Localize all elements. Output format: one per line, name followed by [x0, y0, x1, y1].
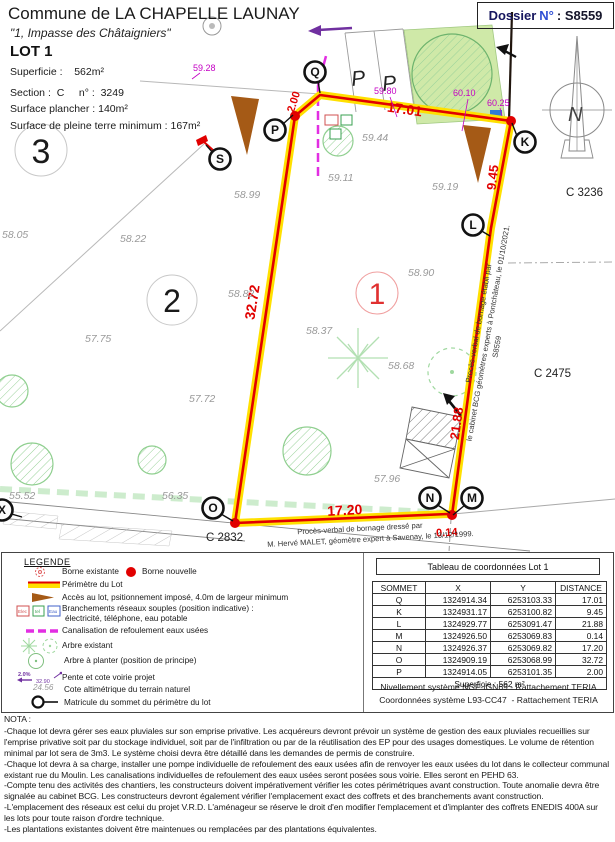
svg-text:2: 2	[163, 283, 181, 319]
table-header-row: SOMMET X Y DISTANCE	[373, 582, 607, 594]
table-row: Q1324914.346253103.3317.01	[373, 594, 607, 606]
snowflake-tree	[328, 328, 388, 388]
pleine-terre-line: Surface de pleine terre minimum : 167m²	[10, 120, 200, 132]
canalisation-icon	[26, 627, 62, 635]
dossier-label: Dossier	[489, 8, 537, 23]
legend-arbre-planter: Arbre à planter (position de principe)	[64, 656, 196, 665]
legend: LEGENDE Borne existante Borne nouvelle P…	[2, 553, 364, 712]
legend-canalisation: Canalisation de refoulement eaux usées	[62, 626, 208, 635]
sommet-o: O	[208, 501, 217, 515]
table-title: Tableau de coordonnées Lot 1	[376, 558, 600, 575]
svg-text:Eau: Eau	[49, 609, 58, 614]
legend-acces: Accès au lot, psitionnement imposé, 4.0m…	[62, 593, 288, 602]
plan-drawing: P P	[0, 0, 615, 552]
lot-title: LOT 1	[10, 43, 53, 60]
branchements-icon: Elec tel Eau	[16, 605, 62, 618]
sommet-p: P	[271, 123, 279, 137]
survey-plan-page: P P	[0, 0, 615, 842]
col-distance: DISTANCE	[556, 582, 607, 594]
dossier-no: N°	[539, 8, 554, 23]
svg-text:17.20: 17.20	[327, 501, 363, 519]
svg-text:3: 3	[32, 133, 51, 171]
nota-section: NOTA : -Chaque lot devra gérer ses eaux …	[4, 712, 610, 835]
nota-item: -Chaque lot devra à sa charge, installer…	[4, 759, 610, 781]
svg-text:59.11: 59.11	[328, 172, 354, 184]
address-subtitle: "1, Impasse des Châtaigniers"	[10, 26, 171, 40]
table-row: N1324926.376253069.8217.20	[373, 642, 607, 654]
svg-text:57.96: 57.96	[374, 473, 400, 485]
legend-perimetre: Périmètre du Lot	[62, 580, 123, 589]
svg-text:57.72: 57.72	[189, 393, 215, 405]
section-line: Section : C n° : 3249	[10, 87, 124, 99]
legend-matricule: Matricule du sommet du périmètre du lot	[64, 698, 211, 707]
legend-pente: Pente et cote voirie projet	[62, 673, 155, 682]
legend-table-band: LEGENDE Borne existante Borne nouvelle P…	[1, 552, 614, 713]
compass-n: N	[568, 104, 583, 126]
legend-borne-nouvelle: Borne nouvelle	[142, 567, 197, 576]
nota-title: NOTA :	[4, 714, 610, 725]
lot-number-2: 2	[147, 275, 197, 325]
col-sommet: SOMMET	[373, 582, 426, 594]
lot-number-1: 1	[356, 272, 398, 314]
svg-text:Elec: Elec	[18, 609, 28, 614]
sommet-q: Q	[310, 65, 319, 79]
svg-text:60.10: 60.10	[453, 88, 476, 98]
borne-nouvelle-icon	[124, 566, 138, 578]
svg-text:9.45: 9.45	[484, 164, 502, 191]
table-row: O1324909.196253068.9932.72	[373, 654, 607, 666]
svg-text:55.52: 55.52	[9, 490, 35, 502]
svg-text:tel: tel	[35, 609, 40, 614]
svg-text:58.05: 58.05	[2, 229, 28, 241]
north-compass: N	[542, 36, 612, 158]
svg-text:57.75: 57.75	[85, 333, 111, 345]
svg-text:59.44: 59.44	[362, 132, 388, 144]
sommet-k: K	[521, 135, 530, 149]
svg-text:S8559: S8559	[491, 335, 504, 358]
legend-cote: Cote altimétrique du terrain naturel	[64, 685, 190, 694]
sommet-l: L	[469, 218, 476, 232]
arbre-planter-icon	[26, 652, 46, 670]
surface-plancher-line: Surface plancher : 140m²	[10, 103, 128, 115]
svg-text:56.35: 56.35	[162, 490, 188, 502]
coordinates-table: SOMMET X Y DISTANCE Q1324914.346253103.3…	[372, 581, 607, 690]
nota-item: -Les plantations existantes doivent être…	[4, 824, 610, 835]
sommet-n: N	[426, 491, 435, 505]
table-row: P1324914.056253101.352.00	[373, 666, 607, 678]
sommet-s: S	[216, 152, 224, 166]
table-row: M1324926.506253069.830.14	[373, 630, 607, 642]
legend-branchements-1: Branchements réseaux souples (position i…	[62, 604, 254, 613]
legend-arbre-existant: Arbre existant	[62, 641, 113, 650]
nota-item: -L'emplacement des réseaux est celui du …	[4, 802, 610, 824]
sommet-m: M	[467, 491, 477, 505]
dossier-number-box: Dossier N° : S8559	[477, 2, 614, 29]
parking-letter: P	[350, 67, 366, 91]
svg-text:58.22: 58.22	[120, 233, 146, 245]
parcel-c2475: C 2475	[534, 368, 571, 380]
svg-text:1: 1	[369, 278, 386, 311]
col-y: Y	[491, 582, 556, 594]
parcel-c2832: C 2832	[206, 532, 243, 544]
distance-labels: 2.00 17.01 9.45 21.88 0.14 17.20 32.72	[241, 90, 501, 540]
legend-branchements-2: électricité, téléphone, eau potable	[65, 614, 187, 623]
coordonnees-note: Coordonnées système L93-CC47 - Rattachem…	[364, 695, 613, 705]
nota-item: -Compte tenu des activités des chantiers…	[4, 780, 610, 802]
svg-text:59.28: 59.28	[193, 63, 216, 73]
svg-text:60.25: 60.25	[487, 98, 510, 108]
nota-item: -Chaque lot devra gérer ses eaux pluvial…	[4, 726, 610, 759]
perimetre-icon	[28, 580, 60, 589]
page-title: Commune de LA CHAPELLE LAUNAY	[8, 4, 300, 24]
parcel-c3236: C 3236	[566, 187, 603, 199]
table-row: K1324931.176253100.829.45	[373, 606, 607, 618]
svg-text:58.99: 58.99	[234, 189, 260, 201]
svg-text:59.80: 59.80	[374, 86, 397, 96]
matricule-icon	[30, 695, 60, 709]
natural-elevations: 59.44 59.11 59.19 58.99 58.82 58.90 58.3…	[2, 132, 458, 502]
borne-existante-icon	[32, 566, 48, 578]
acces-icon	[30, 592, 56, 604]
svg-text:58.82: 58.82	[228, 288, 254, 300]
dossier-value: : S8559	[557, 8, 603, 23]
svg-text:58.37: 58.37	[306, 325, 333, 337]
svg-text:58.68: 58.68	[388, 360, 414, 372]
cote-value: 24.56	[33, 683, 54, 692]
coordinates-section: Tableau de coordonnées Lot 1 SOMMET X Y …	[364, 553, 613, 712]
col-x: X	[426, 582, 491, 594]
sommet-x: X	[0, 503, 6, 517]
legend-borne-existante: Borne existante	[62, 567, 119, 576]
svg-text:59.19: 59.19	[432, 181, 458, 193]
nivellement-note: Nivellement système NGF-IGN69 - Rattache…	[364, 682, 613, 692]
superficie-line: Superficie : 562m²	[10, 66, 104, 78]
table-row: L1324929.776253091.4721.88	[373, 618, 607, 630]
svg-text:58.90: 58.90	[408, 267, 434, 279]
svg-text:2.0%: 2.0%	[18, 672, 31, 678]
